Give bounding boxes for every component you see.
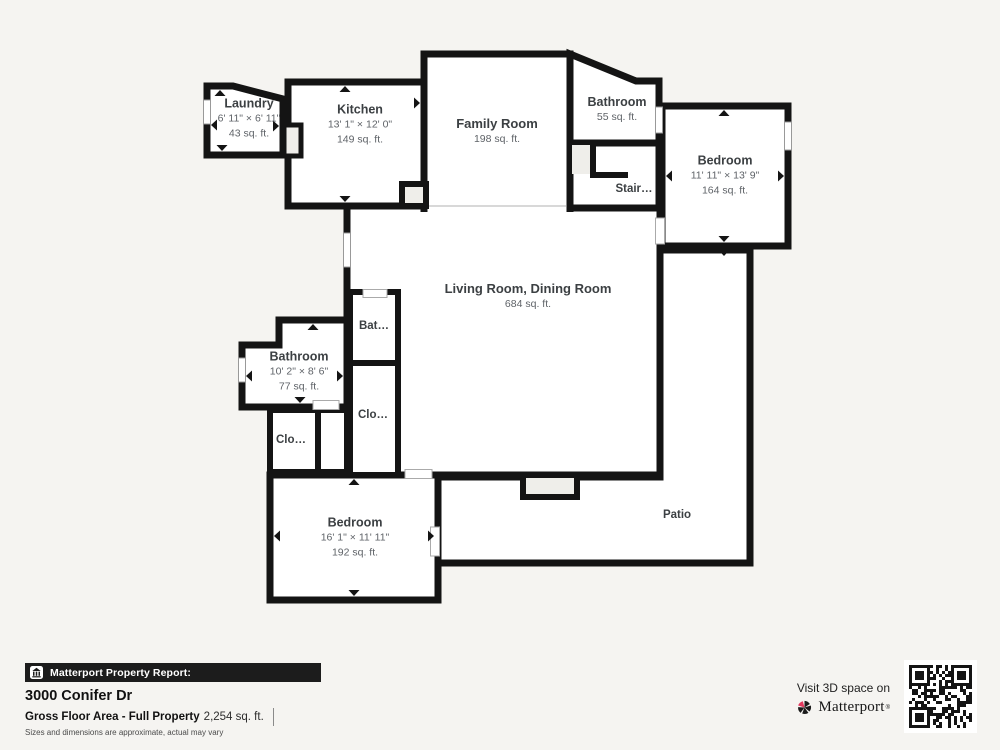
disclaimer-text: Sizes and dimensions are approximate, ac… <box>25 728 223 737</box>
room-bedroom-upper-walls <box>662 106 788 246</box>
door-bathroom-left <box>313 401 339 410</box>
matterport-pinwheel-icon <box>796 699 813 716</box>
room-closet-left-walls <box>270 410 318 472</box>
room-bedroom-lower-walls <box>270 475 438 600</box>
report-bar: Matterport Property Report: <box>25 663 321 682</box>
visit-3d-cta: Visit 3D space on Matterport® <box>770 681 890 716</box>
door-bedroom-lower <box>431 527 440 556</box>
floor-area-value: 2,254 sq. ft. <box>204 711 264 723</box>
stair-landing <box>572 145 592 174</box>
trademark-symbol: ® <box>886 705 890 711</box>
door-bath-small <box>363 290 387 298</box>
laundry-door-recess <box>284 125 301 156</box>
divider <box>273 708 274 726</box>
building-icon <box>30 666 43 679</box>
qr-code <box>904 660 977 733</box>
room-bathroom-upper-walls <box>570 54 659 143</box>
room-bathroom-left-walls <box>242 320 347 407</box>
matterport-wordmark: Matterport <box>818 699 884 716</box>
room-closet-right-walls <box>350 363 398 475</box>
floor-area-label: Gross Floor Area - Full Property <box>25 711 200 723</box>
matterport-floorplan-report: { "plan": { "rooms": { "laundry": {"name… <box>0 0 1000 750</box>
room-bath-small-walls <box>350 292 398 363</box>
visit-3d-text: Visit 3D space on <box>770 681 890 695</box>
floor-area-row: Gross Floor Area - Full Property 2,254 s… <box>25 708 274 726</box>
window-laundry-left <box>204 100 211 124</box>
report-bar-label: Matterport Property Report: <box>50 667 191 679</box>
room-hall-cell-walls <box>318 410 347 472</box>
room-family-walls <box>424 54 570 212</box>
window-bedroom-upper-right <box>785 122 792 150</box>
window-living-left <box>344 233 351 267</box>
door-living-bedroom <box>405 470 432 479</box>
room-laundry-walls <box>207 86 283 155</box>
matterport-logo: Matterport® <box>770 699 890 716</box>
kitchen-pantry-box <box>402 184 426 206</box>
property-address: 3000 Conifer Dr <box>25 688 132 704</box>
patio-step-box <box>523 475 577 497</box>
window-bathroom-upper-right <box>656 107 663 133</box>
door-bedroom-upper <box>656 218 665 244</box>
window-bathroom-left <box>239 358 246 382</box>
floor-plan <box>0 0 1000 750</box>
